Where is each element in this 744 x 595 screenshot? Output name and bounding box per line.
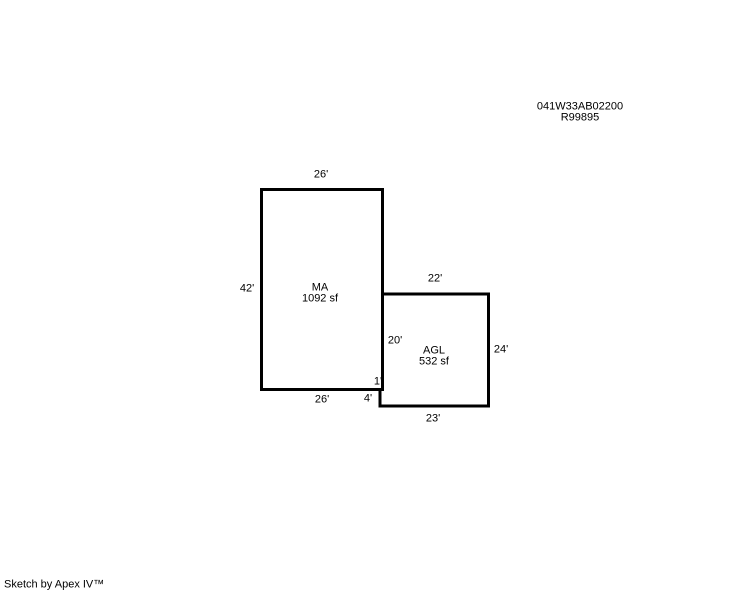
agl-dim-bottom: 23': [426, 414, 440, 425]
agl-area-size: 532 sf: [419, 357, 449, 368]
ma-dim-top: 26': [314, 170, 328, 181]
agl-dim-notch-height: 4': [364, 394, 372, 405]
ma-dim-left: 42': [240, 284, 254, 295]
sketch-canvas: [0, 0, 744, 595]
agl-dim-left: 20': [388, 336, 402, 347]
agl-dim-top: 22': [428, 274, 442, 285]
sketch-page: 041W33AB02200 R99895 26' 42' MA 1092 sf …: [0, 0, 744, 595]
sketch-credit: Sketch by Apex IV™: [4, 580, 104, 591]
record-number: R99895: [561, 113, 600, 124]
agl-dim-notch-width: 1': [374, 377, 382, 388]
ma-area-size: 1092 sf: [302, 294, 338, 305]
agl-dim-right: 24': [494, 345, 508, 356]
ma-dim-bottom: 26': [315, 395, 329, 406]
